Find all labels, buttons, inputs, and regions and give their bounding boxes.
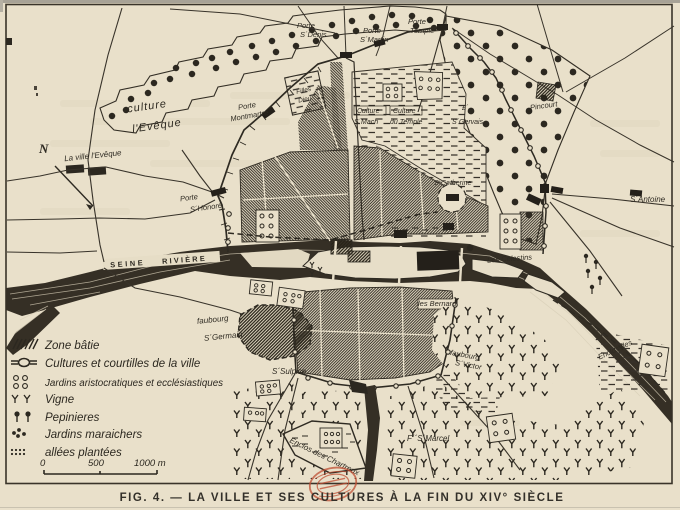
svg-text:S´Gervais: S´Gervais	[452, 119, 484, 126]
svg-text:Porte: Porte	[297, 21, 315, 30]
svg-text:S´Sulpice: S´Sulpice	[272, 367, 307, 376]
svg-text:£´: £´	[461, 105, 469, 112]
svg-text:du Temple: du Temple	[390, 119, 423, 126]
svg-text:Jardins maraichers: Jardins maraichers	[44, 429, 142, 441]
svg-text:Temple: Temple	[410, 26, 434, 35]
svg-text:0: 0	[40, 458, 46, 469]
svg-text:les Bernard: les Bernard	[418, 299, 457, 308]
svg-text:S´Denis: S´Denis	[300, 30, 327, 39]
svg-text:Cultures et courtilles de la v: Cultures et courtilles de la ville	[45, 358, 200, 370]
svg-text:Culture: Culture	[357, 108, 380, 115]
svg-text:S´Mach: S´Mach	[354, 119, 378, 126]
svg-text:Porte: Porte	[363, 26, 381, 35]
svg-text:Pepinieres: Pepinieres	[45, 412, 100, 424]
svg-text:F´´S´Marcel: F´´S´Marcel	[407, 434, 449, 443]
svg-text:Porte: Porte	[408, 17, 426, 26]
svg-text:S´Antoine: S´Antoine	[630, 195, 666, 204]
svg-text:500: 500	[88, 458, 105, 469]
svg-text:allées plantées: allées plantées	[45, 447, 122, 459]
svg-text:Vigne: Vigne	[45, 394, 74, 406]
svg-text:Zone bâtie: Zone bâtie	[44, 340, 99, 352]
svg-text:Jardins aristocratiques et ecc: Jardins aristocratiques et ecclésiastiqu…	[44, 378, 223, 389]
svg-text:N: N	[38, 141, 49, 156]
svg-text:S´Martin: S´Martin	[360, 35, 388, 44]
svg-text:FIG. 4. — LA VILLE ET SES CULT: FIG. 4. — LA VILLE ET SES CULTURES À LA …	[120, 491, 565, 504]
svg-text:1000 m: 1000 m	[134, 458, 166, 469]
svg-text:Culture: Culture	[393, 108, 416, 115]
